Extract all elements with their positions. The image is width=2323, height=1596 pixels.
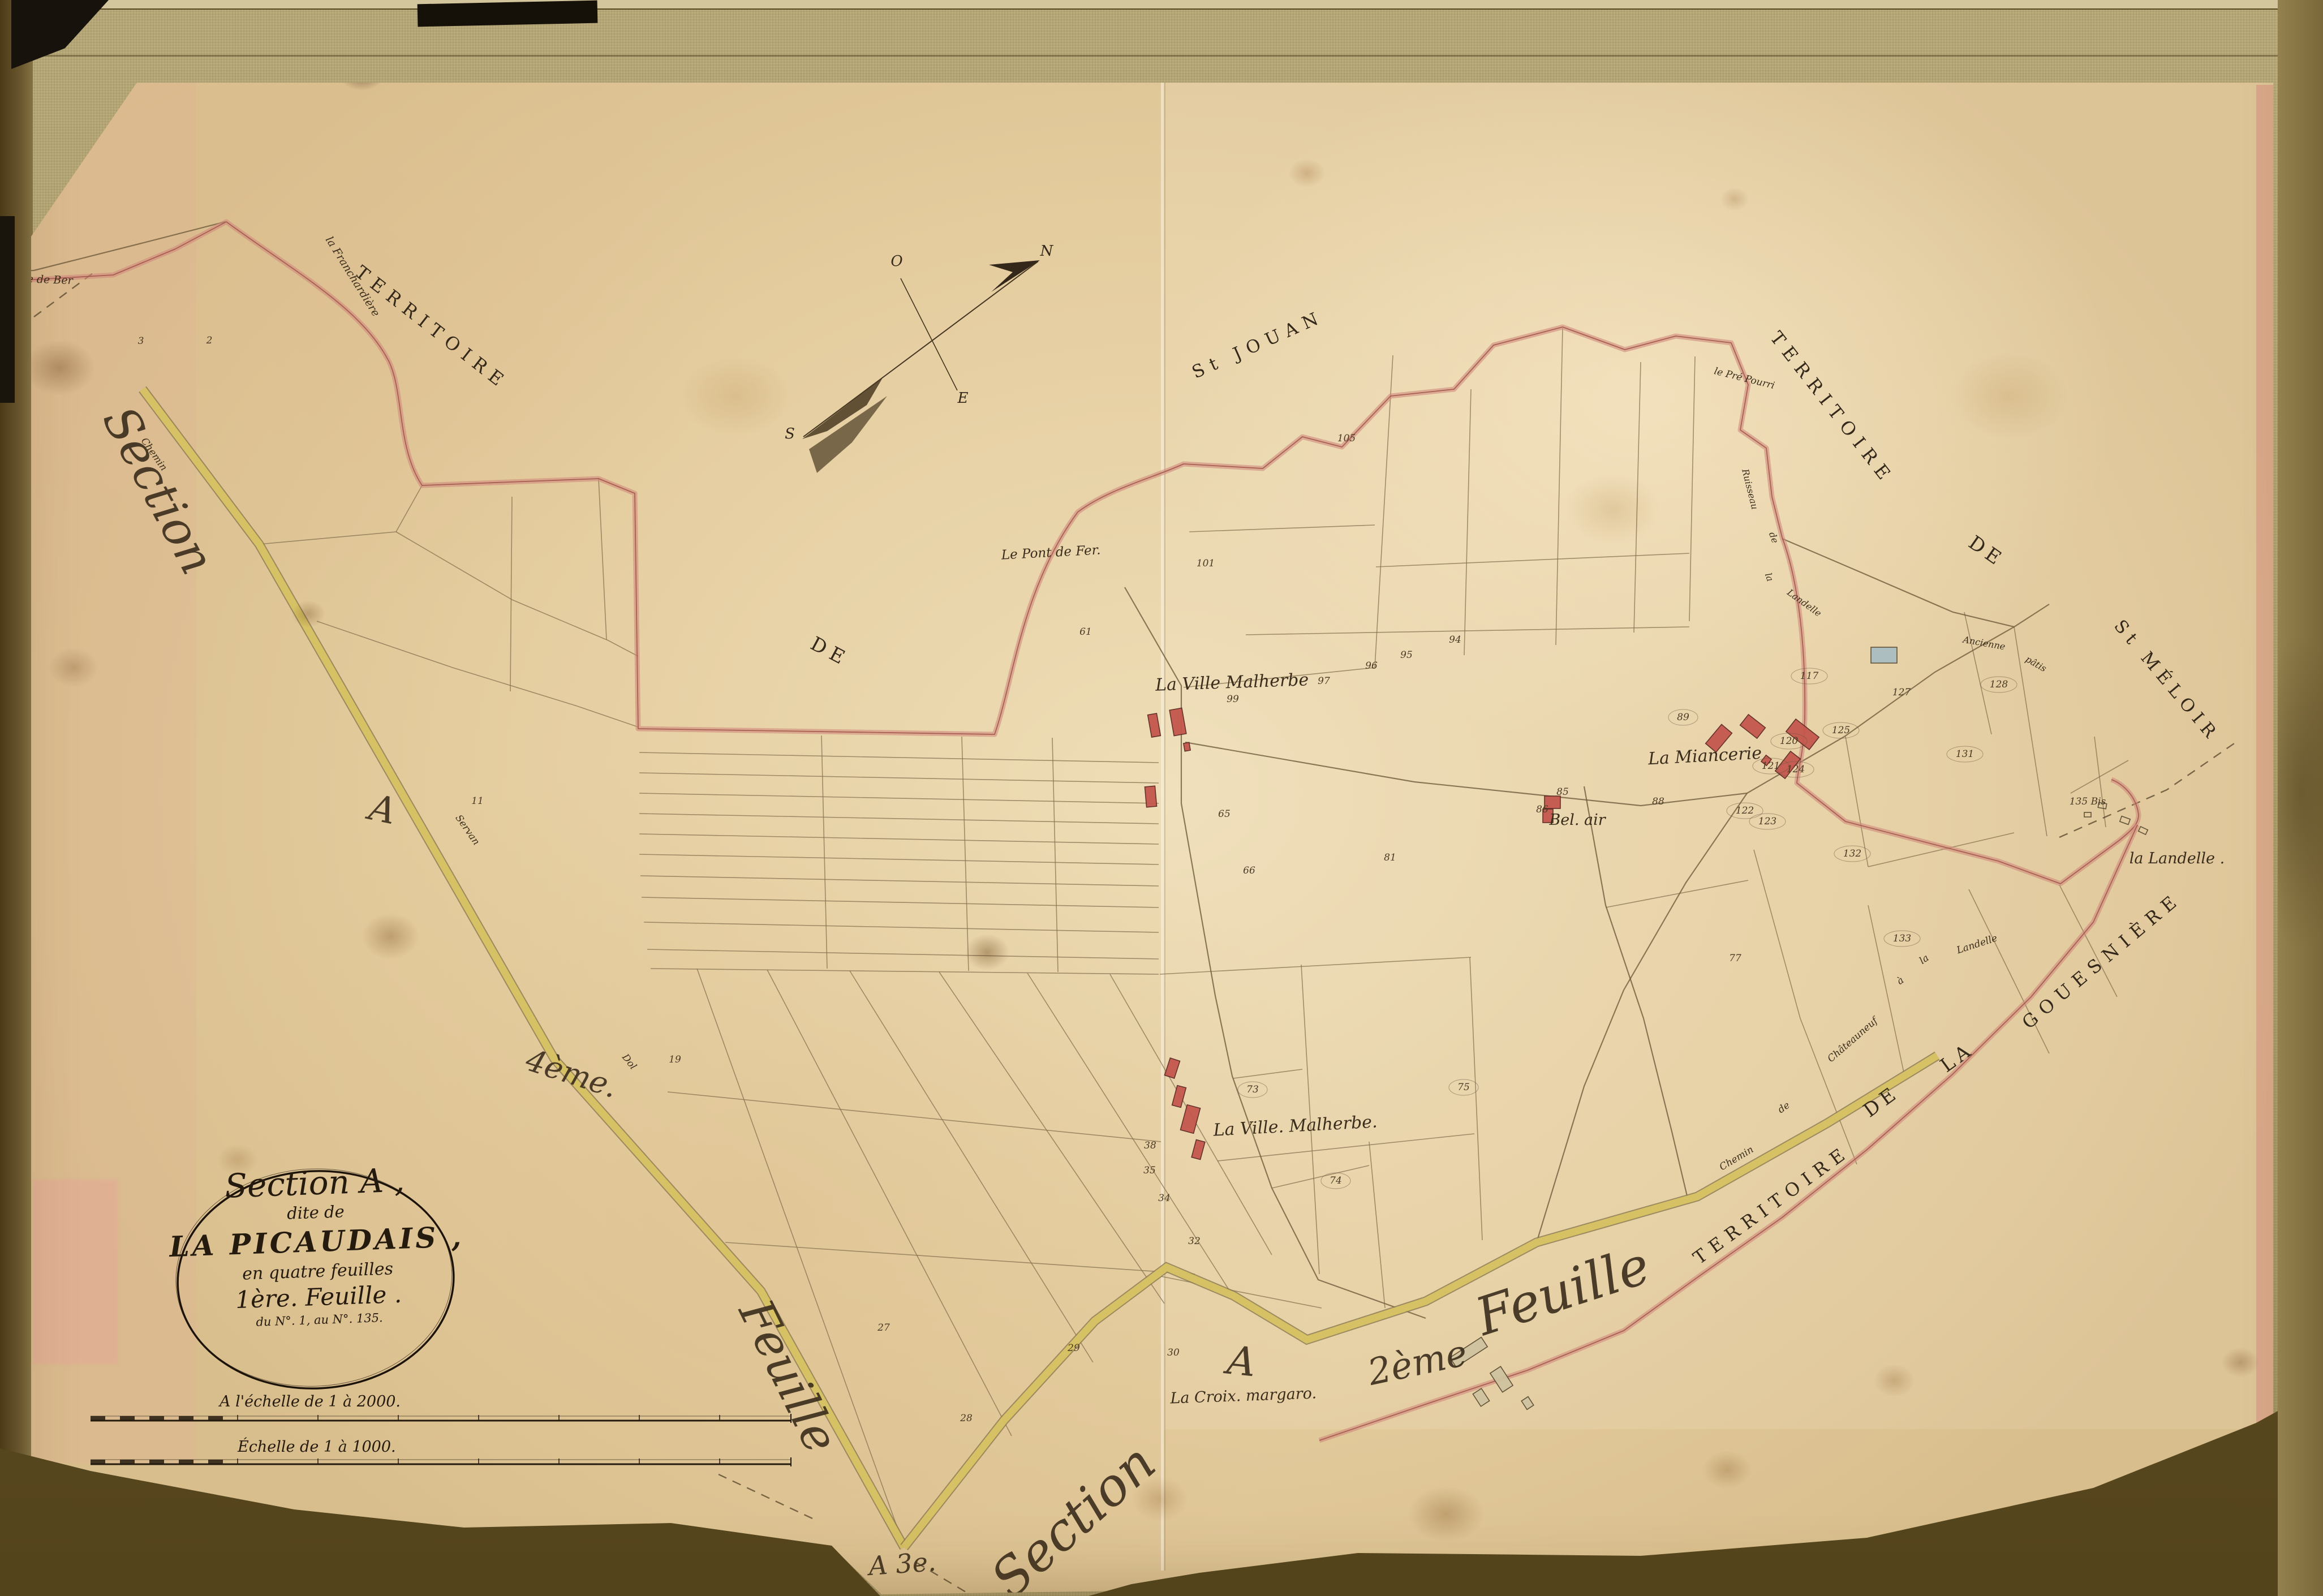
- dashed-road: [719, 1474, 812, 1518]
- parcel-number: 122: [1736, 805, 1754, 816]
- parcel-number: 32: [1188, 1236, 1201, 1247]
- parcel-line: [1470, 957, 1482, 1240]
- parcel-number: 124: [1787, 764, 1805, 775]
- parcel-number: 29: [1067, 1343, 1080, 1354]
- place-label: Landelle: [1955, 932, 1999, 956]
- place-label: La Croix. margaro.: [1169, 1385, 1317, 1408]
- place-label: Le Pont de Fer.: [1000, 543, 1101, 562]
- parcel-line: [1189, 525, 1375, 532]
- building-red: [1145, 786, 1156, 807]
- scale-bars: [91, 1414, 791, 1466]
- parcel-number: 28: [960, 1413, 973, 1424]
- parcel-number: 73: [1246, 1084, 1259, 1095]
- building-red: [1740, 715, 1766, 738]
- territory-label: St JOUAN: [1189, 306, 1327, 382]
- parcel-number: 95: [1400, 649, 1413, 661]
- canvas-seam: [0, 55, 2323, 57]
- territory-label: St MÉLOIR: [2110, 615, 2224, 746]
- parcel-line: [1376, 553, 1689, 567]
- lane-road: [1185, 604, 2049, 806]
- sheet-label: Section: [979, 1432, 1167, 1596]
- parcel-line: [1556, 328, 1563, 645]
- compass-letter-north: N: [1040, 243, 1054, 260]
- parcel-line: [1969, 889, 2049, 1053]
- scale-bar-segment: [91, 1460, 105, 1464]
- parcel-number: 65: [1218, 808, 1231, 820]
- title-cartouche: Section A , dite de LA PICAUDAIS , en qu…: [159, 1159, 475, 1334]
- territory-label: DE: [1964, 531, 2009, 572]
- place-label: la: [1917, 952, 1931, 966]
- scale-bar-segment: [120, 1460, 135, 1464]
- building-red: [1180, 1105, 1200, 1134]
- parcel-number: 123: [1758, 816, 1776, 827]
- sheet-label: A 3e.: [866, 1546, 937, 1581]
- map-paper: TERRITOIREDESt JOUANTERRITOIREDESt MÉLOI…: [0, 0, 2323, 1596]
- parcel-line: [259, 485, 422, 544]
- parcel-line: [668, 1092, 1161, 1142]
- scale-label-1000: Échelle de 1 à 1000.: [238, 1438, 396, 1456]
- parcel-number: 35: [1143, 1165, 1156, 1176]
- building-red: [1172, 1086, 1186, 1108]
- place-label: Ancienne: [1961, 634, 2006, 652]
- parcel-number: 66: [1243, 865, 1255, 876]
- building-red: [1148, 713, 1161, 737]
- compass-shaft: [803, 261, 1038, 437]
- parcel-line: [1606, 880, 1748, 907]
- building-red: [1164, 1058, 1180, 1078]
- parcel-number: 99: [1227, 694, 1239, 705]
- parcel-number: 117: [1800, 670, 1819, 682]
- scale-bar-segment: [179, 1416, 193, 1421]
- parcel-line: [821, 735, 827, 969]
- cadastral-map-sheet: TERRITOIREDESt JOUANTERRITOIREDESt MÉLOI…: [0, 0, 2323, 1596]
- yellow-roads: [143, 389, 1937, 1547]
- parcel-number: 74: [1330, 1175, 1342, 1186]
- parcel-line: [639, 773, 1159, 783]
- place-label: pâtis: [2024, 653, 2049, 674]
- parcel-line: [939, 972, 1164, 1304]
- building-outline: [2139, 827, 2148, 834]
- parcel-number: 19: [669, 1054, 681, 1065]
- parcel-number: 125: [1832, 725, 1850, 736]
- parcel-number: 85: [1556, 786, 1569, 798]
- parcel-number: 131: [1956, 748, 1974, 760]
- dashed-road: [2059, 742, 2236, 837]
- black-top-mark: [418, 1, 598, 27]
- sheet-label: A: [1221, 1336, 1258, 1386]
- parcel-line: [651, 969, 1159, 974]
- road-yellow-fill: [904, 1056, 1937, 1547]
- parcel-line: [644, 922, 1159, 932]
- parcel-line: [725, 1242, 1195, 1274]
- parcel-line: [599, 479, 606, 639]
- parcel-number: 34: [1158, 1193, 1171, 1204]
- parcel-line: [2094, 737, 2106, 827]
- parcel-number: 61: [1079, 626, 1092, 638]
- parcel-number: 135 Bis: [2070, 796, 2106, 807]
- parcel-line: [510, 497, 512, 691]
- parcel-line: [639, 793, 1159, 803]
- building-red: [1191, 1139, 1205, 1159]
- lane-road: [1537, 793, 1747, 1242]
- parcel-number: 96: [1365, 660, 1378, 672]
- parcel-number: 81: [1384, 852, 1396, 863]
- parcel-line: [647, 949, 1159, 959]
- territory-label: DE: [807, 633, 853, 672]
- parcel-number: 77: [1729, 953, 1741, 964]
- parcel-number: 86: [1536, 804, 1548, 815]
- parcel-line: [639, 814, 1159, 824]
- parcel-number: 121: [1762, 760, 1780, 772]
- place-label: la: [1763, 571, 1776, 583]
- scale-bar-segment: [149, 1460, 164, 1464]
- parcel-number: 30: [1167, 1347, 1180, 1358]
- parcel-number: 75: [1457, 1082, 1470, 1093]
- lane-road: [34, 222, 225, 270]
- parcel-line: [850, 971, 1093, 1362]
- parcel-number: 89: [1677, 712, 1689, 723]
- place-label: Ruisseau: [1740, 467, 1760, 511]
- parcel-number: 132: [1843, 848, 1861, 859]
- compass-arrowhead: [989, 260, 1040, 292]
- compass-letter-south: S: [785, 425, 795, 442]
- parcel-lines: [259, 328, 2128, 1543]
- building-red: [1184, 742, 1190, 751]
- black-left-mark: [0, 216, 15, 403]
- place-label: Bel. air: [1548, 811, 1606, 829]
- parcel-line: [1689, 356, 1695, 621]
- parcel-line: [1464, 389, 1471, 655]
- place-label: Landelle: [1785, 587, 1824, 619]
- parcel-blue: [1871, 647, 1897, 663]
- parcel-number: 105: [1337, 433, 1356, 444]
- sheet-label: 4ème.: [521, 1042, 622, 1105]
- territory-label: TERRITOIRE: [1766, 327, 1899, 489]
- building-gray: [1521, 1397, 1534, 1410]
- compass-rose: NSOE: [785, 243, 1054, 473]
- parcel-line: [640, 876, 1159, 886]
- territory-label: DE: [1859, 1081, 1904, 1122]
- top-roll-edge: [0, 0, 2323, 10]
- lane-road: [1125, 587, 1426, 1318]
- parcel-line: [962, 737, 969, 971]
- place-label: de: [1776, 1100, 1792, 1116]
- map-drawing: TERRITOIREDESt JOUANTERRITOIREDESt MÉLOI…: [0, 0, 2323, 1596]
- parcel-number: 133: [1893, 933, 1911, 944]
- compass-cross: [901, 278, 957, 390]
- parcel-line: [1160, 957, 1471, 974]
- sheet-label: Feuille: [728, 1290, 849, 1461]
- parcel-line: [1369, 1142, 1385, 1308]
- parcel-line: [639, 834, 1159, 844]
- parcel-line: [639, 752, 1159, 763]
- sheet-label: A: [363, 786, 399, 833]
- parcel-number: 27: [877, 1322, 890, 1333]
- parcel-number: 11: [471, 795, 484, 807]
- parcel-number: 94: [1449, 634, 1461, 646]
- parcel-number: 38: [1144, 1140, 1156, 1151]
- place-label: La Ville Malherbe: [1155, 670, 1309, 695]
- parcel-number: 2: [206, 335, 213, 346]
- sheet-label: 2ème: [1363, 1332, 1471, 1394]
- parcel-line: [1052, 738, 1058, 972]
- parcel-line: [1272, 1165, 1369, 1188]
- place-label: Châteauneuf: [1826, 1014, 1881, 1065]
- parcel-line: [317, 621, 638, 727]
- scale-bar-segment: [120, 1416, 135, 1421]
- compass-letter-west: O: [891, 253, 902, 270]
- parcel-number: 128: [1990, 679, 2008, 690]
- place-label: à: [1895, 975, 1906, 987]
- parcel-line: [642, 897, 1159, 907]
- parcel-number: 120: [1780, 735, 1799, 747]
- scale-label-2000: A l'échelle de 1 à 2000.: [220, 1393, 401, 1410]
- parcel-number: 88: [1652, 796, 1664, 807]
- scale-bar-segment: [208, 1460, 223, 1464]
- compass-letter-east: E: [957, 390, 969, 407]
- sheet-label: Section: [92, 397, 226, 583]
- parcel-line: [1233, 1069, 1302, 1078]
- parcel-number: 101: [1197, 558, 1215, 569]
- parcel-number: 97: [1318, 676, 1330, 687]
- place-label: Dol: [619, 1051, 638, 1072]
- scale-bar-segment: [179, 1460, 193, 1464]
- parcel-line: [1964, 612, 1991, 734]
- parcel-line: [639, 854, 1159, 864]
- scale-bar-segment: [91, 1416, 105, 1421]
- right-canvas-edge: [2278, 0, 2323, 1596]
- sheet-label: Feuille: [1468, 1234, 1657, 1348]
- territory-label: LA: [1936, 1038, 1978, 1077]
- parcel-line: [1246, 627, 1689, 635]
- place-label: Servan: [453, 813, 482, 848]
- building-red: [1169, 708, 1186, 735]
- parcel-line: [1846, 737, 1868, 867]
- building-outline: [2084, 812, 2091, 817]
- lane-roads: [1, 222, 2236, 1596]
- building-outline: [2120, 816, 2130, 825]
- scale-bar-segment: [208, 1416, 223, 1421]
- place-label: la Landelle .: [2130, 850, 2225, 867]
- parcel-line: [1634, 362, 1641, 633]
- parcel-number: 3: [138, 335, 144, 347]
- scale-bar-segment: [149, 1416, 164, 1421]
- territory-label: TERRITOIRE: [351, 261, 513, 394]
- building-gray: [1473, 1388, 1489, 1406]
- parcel-number: 127: [1892, 687, 1911, 698]
- lane-road: [1584, 786, 1687, 1196]
- place-label: La Miancerie: [1647, 743, 1762, 769]
- place-label: La Ville. Malherbe.: [1212, 1112, 1378, 1140]
